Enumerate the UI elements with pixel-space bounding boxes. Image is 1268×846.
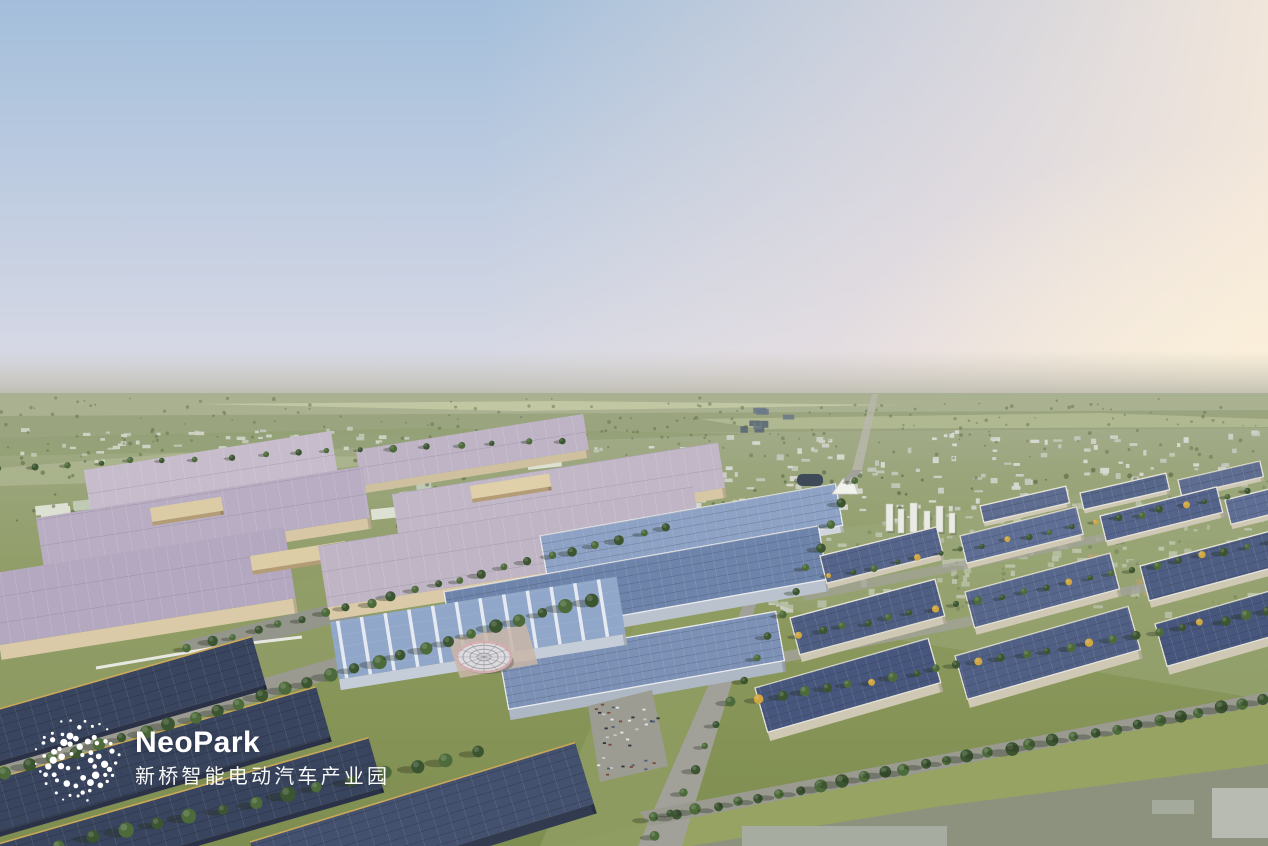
dark-pavilion	[797, 474, 823, 486]
neopark-aerial-rendering	[0, 0, 1268, 846]
aerial-render-stage: NeoPark 新桥智能电动汽车产业园	[0, 0, 1268, 846]
round-building	[457, 642, 511, 672]
horizon-haze	[0, 350, 1268, 394]
